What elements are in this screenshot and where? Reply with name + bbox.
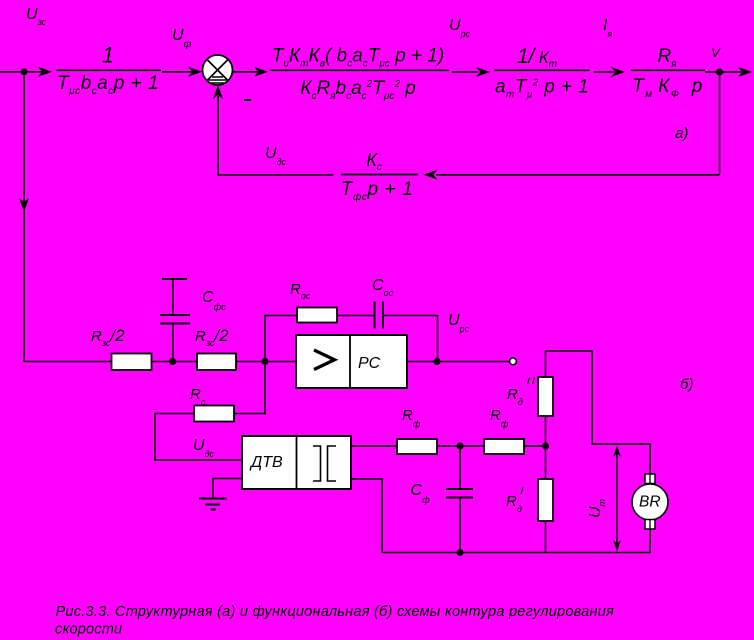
svg-text:ТиКтКв( bсaсТμс p + 1): ТиКтКв( bсaсТμс p + 1) — [272, 46, 444, 70]
svg-text:ДТВ: ДТВ — [249, 454, 283, 471]
svg-text:б): б) — [680, 376, 693, 393]
svg-text:Тм КФ p: Тм КФ p — [632, 76, 704, 100]
svg-text:РС: РС — [358, 355, 381, 372]
svg-text:Рис.3.3. Структурная (а) и фун: Рис.3.3. Структурная (а) и функциональна… — [56, 604, 615, 620]
svg-text:BR: BR — [639, 494, 661, 511]
svg-text:а): а) — [675, 125, 688, 142]
svg-text:V: V — [711, 45, 721, 60]
svg-text:1: 1 — [102, 43, 114, 68]
svg-text:Тфсp + 1: Тфсp + 1 — [341, 179, 414, 203]
svg-text:скорости: скорости — [55, 622, 122, 638]
